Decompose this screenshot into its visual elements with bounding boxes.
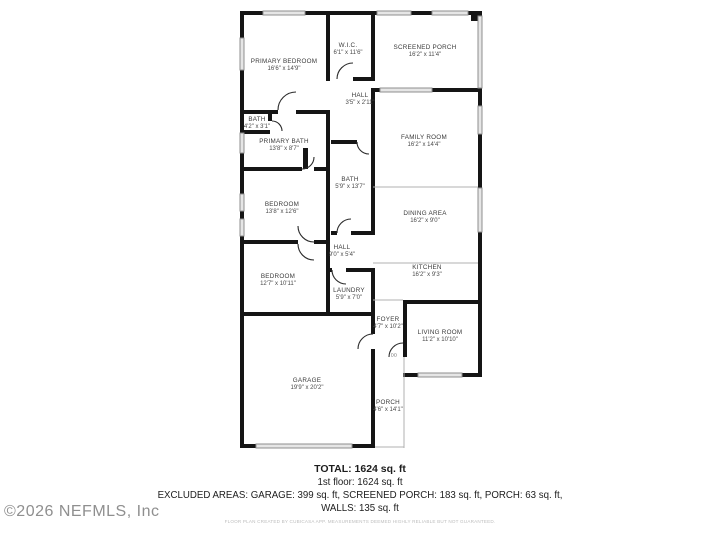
room-name: LIVING ROOM xyxy=(418,329,463,337)
room-name: GARAGE xyxy=(291,377,324,385)
floorplan-page: PRIMARY BEDROOM16'6" x 14'9" W.I.C.6'1" … xyxy=(0,0,720,540)
room-label-primary-bath: PRIMARY BATH13'8" x 8'7" xyxy=(259,138,309,154)
room-dims: 16'2" x 14'4" xyxy=(401,142,447,150)
room-dims: 16'2" x 9'0" xyxy=(403,218,446,226)
front-door-marker: DD xyxy=(391,353,398,358)
room-label-dining-area: DINING AREA16'2" x 9'0" xyxy=(403,210,446,226)
room-label-hall-lower: HALL9'0" x 5'4" xyxy=(329,244,355,260)
room-name: HALL xyxy=(329,244,355,252)
room-name: PRIMARY BEDROOM xyxy=(251,58,318,66)
room-name: KITCHEN xyxy=(412,264,442,272)
room-name: PORCH xyxy=(373,399,403,407)
room-name: BEDROOM xyxy=(260,273,296,281)
room-dims: 9'0" x 5'4" xyxy=(329,252,355,260)
excluded-areas-line: EXCLUDED AREAS: GARAGE: 399 sq. ft, SCRE… xyxy=(0,489,720,502)
room-name: FAMILY ROOM xyxy=(401,134,447,142)
mls-watermark: ©2026 NEFMLS, Inc xyxy=(4,503,159,521)
room-label-wic: W.I.C.6'1" x 11'6" xyxy=(333,42,362,58)
room-dims: 4'6" x 14'1" xyxy=(373,407,403,415)
room-dims: 13'8" x 12'6" xyxy=(265,209,299,217)
room-dims: 5'9" x 13'7" xyxy=(335,184,365,192)
room-name: DINING AREA xyxy=(403,210,446,218)
first-floor-line: 1st floor: 1624 sq. ft xyxy=(0,476,720,489)
room-label-screened-porch: SCREENED PORCH16'2" x 11'4" xyxy=(394,44,457,60)
room-dims: 19'9" x 20'2" xyxy=(291,385,324,393)
room-name: SCREENED PORCH xyxy=(394,44,457,52)
room-dims: 3'5" x 2'11" xyxy=(345,100,374,108)
room-label-living-room: LIVING ROOM11'2" x 10'10" xyxy=(418,329,463,345)
room-label-bedroom-2: BEDROOM12'7" x 10'11" xyxy=(260,273,296,289)
room-dims: 4'7" x 10'2" xyxy=(373,324,403,332)
room-dims: 16'2" x 11'4" xyxy=(394,52,457,60)
room-name: W.I.C. xyxy=(333,42,362,50)
room-dims: 13'8" x 8'7" xyxy=(259,146,309,154)
room-labels: PRIMARY BEDROOM16'6" x 14'9" W.I.C.6'1" … xyxy=(0,0,720,540)
room-name: FOYER xyxy=(373,316,403,324)
room-dims: 11'2" x 10'10" xyxy=(418,337,463,345)
room-label-laundry: LAUNDRY5'9" x 7'0" xyxy=(333,287,365,303)
room-dims: 6'1" x 11'6" xyxy=(333,50,362,58)
room-dims: 16'6" x 14'9" xyxy=(251,66,318,74)
room-label-bath-small: BATH4'2" x 3'1" xyxy=(244,116,270,132)
room-dims: 5'9" x 7'0" xyxy=(333,295,365,303)
room-label-primary-bedroom: PRIMARY BEDROOM16'6" x 14'9" xyxy=(251,58,318,74)
room-label-kitchen: KITCHEN16'2" x 9'3" xyxy=(412,264,442,280)
room-name: BATH xyxy=(244,116,270,124)
room-label-hall-upper: HALL3'5" x 2'11" xyxy=(345,92,374,108)
room-dims: 12'7" x 10'11" xyxy=(260,281,296,289)
room-label-family-room: FAMILY ROOM16'2" x 14'4" xyxy=(401,134,447,150)
total-area-line: TOTAL: 1624 sq. ft xyxy=(0,463,720,476)
room-name: BATH xyxy=(335,176,365,184)
room-name: BEDROOM xyxy=(265,201,299,209)
room-name: HALL xyxy=(345,92,374,100)
room-name: LAUNDRY xyxy=(333,287,365,295)
room-label-foyer: FOYER4'7" x 10'2" xyxy=(373,316,403,332)
room-label-bath-mid: BATH5'9" x 13'7" xyxy=(335,176,365,192)
room-label-bedroom-1: BEDROOM13'8" x 12'6" xyxy=(265,201,299,217)
room-label-porch: PORCH4'6" x 14'1" xyxy=(373,399,403,415)
room-name: PRIMARY BATH xyxy=(259,138,309,146)
room-dims: 4'2" x 3'1" xyxy=(244,124,270,132)
room-dims: 16'2" x 9'3" xyxy=(412,272,442,280)
room-label-garage: GARAGE19'9" x 20'2" xyxy=(291,377,324,393)
